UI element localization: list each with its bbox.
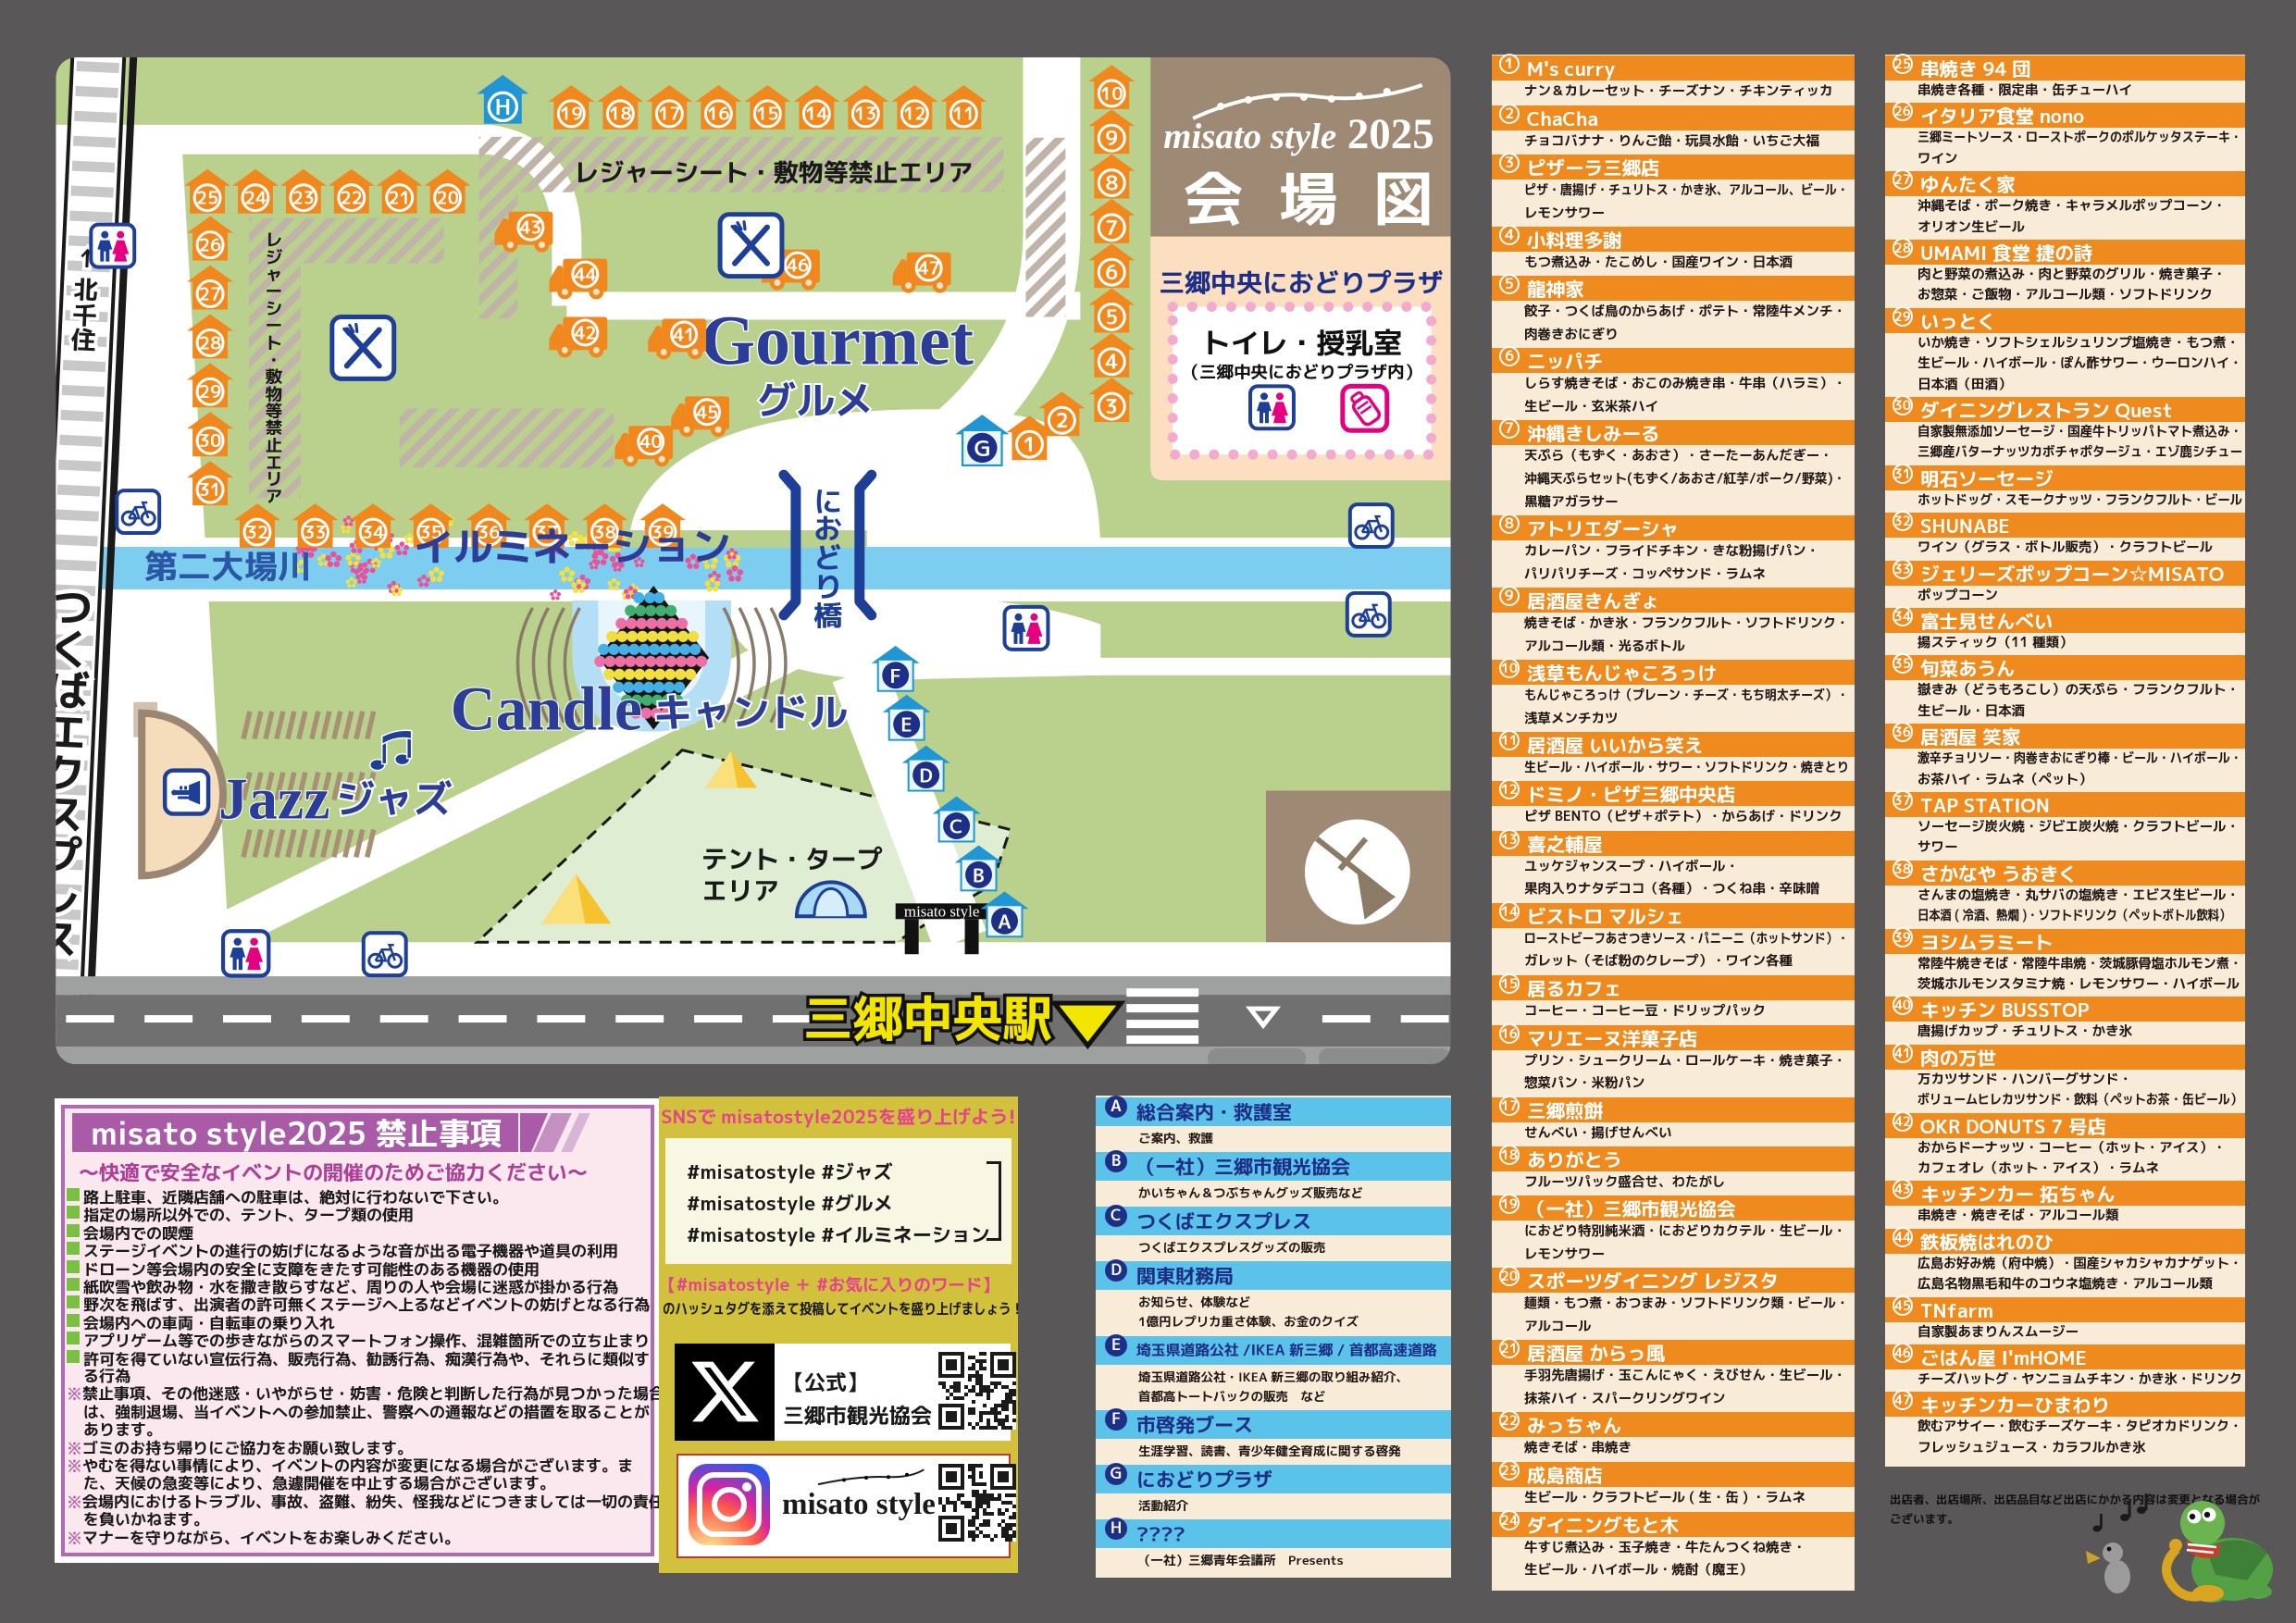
svg-text:におどり橋: におどり橋 xyxy=(808,486,848,629)
svg-text:33: 33 xyxy=(304,521,326,545)
svg-text:5: 5 xyxy=(1105,303,1118,331)
svg-text:40: 40 xyxy=(639,430,662,454)
svg-text:30: 30 xyxy=(199,429,221,453)
svg-text:イルミネーション: イルミネーション xyxy=(414,518,731,574)
svg-text:13: 13 xyxy=(854,103,876,127)
svg-text:25: 25 xyxy=(196,187,218,211)
svg-text:26: 26 xyxy=(199,233,221,257)
svg-text:H: H xyxy=(495,92,511,122)
svg-text:17: 17 xyxy=(658,103,680,127)
svg-text:第二大場川: 第二大場川 xyxy=(144,543,311,589)
svg-text:Jazz: Jazz xyxy=(218,765,330,831)
svg-text:12: 12 xyxy=(903,103,925,127)
svg-text:41: 41 xyxy=(673,323,695,347)
svg-text:44: 44 xyxy=(574,264,596,288)
svg-text:43: 43 xyxy=(519,217,541,241)
svg-text:G: G xyxy=(974,433,990,464)
svg-text:ジャズ: ジャズ xyxy=(336,773,453,826)
svg-text:（三郷中央におどりプラザ内）: （三郷中央におどりプラザ内） xyxy=(1183,359,1421,383)
svg-text:45: 45 xyxy=(696,401,718,425)
svg-text:21: 21 xyxy=(389,187,411,211)
svg-text:11: 11 xyxy=(952,103,974,127)
svg-text:2: 2 xyxy=(1055,406,1068,435)
svg-text:8: 8 xyxy=(1105,168,1118,197)
svg-text:北千住: 北千住 xyxy=(66,276,105,352)
svg-text:キャンドル: キャンドル xyxy=(653,686,848,739)
svg-text:23: 23 xyxy=(292,187,315,211)
svg-text:Candle: Candle xyxy=(451,675,642,744)
svg-text:29: 29 xyxy=(199,380,221,404)
svg-text:misato style 2025: misato style 2025 xyxy=(1163,110,1434,158)
svg-text:6: 6 xyxy=(1105,258,1118,287)
svg-text:18: 18 xyxy=(609,103,631,127)
svg-text:4: 4 xyxy=(1105,348,1118,377)
svg-text:A: A xyxy=(998,907,1011,935)
svg-text:会場図: 会場図 xyxy=(1184,157,1452,240)
svg-text:42: 42 xyxy=(574,321,596,345)
svg-text:14: 14 xyxy=(805,103,827,127)
svg-text:グルメ: グルメ xyxy=(757,373,874,427)
svg-text:F: F xyxy=(890,662,901,689)
svg-text:27: 27 xyxy=(199,282,221,306)
svg-text:Gourmet: Gourmet xyxy=(701,302,974,379)
svg-text:D: D xyxy=(919,762,933,789)
svg-text:B: B xyxy=(973,861,985,888)
svg-text:24: 24 xyxy=(244,187,267,211)
svg-text:10: 10 xyxy=(1100,82,1123,106)
svg-text:16: 16 xyxy=(707,103,729,127)
svg-text:47: 47 xyxy=(918,257,940,281)
svg-text:3: 3 xyxy=(1105,392,1118,421)
svg-text:22: 22 xyxy=(341,187,363,211)
svg-text:C: C xyxy=(949,811,963,839)
svg-text:misato style: misato style xyxy=(904,902,979,920)
svg-text:レジャーシート・敷物等禁止エリア: レジャーシート・敷物等禁止エリア xyxy=(262,231,286,504)
svg-text:46: 46 xyxy=(787,254,809,279)
svg-text:15: 15 xyxy=(756,103,778,127)
svg-text:20: 20 xyxy=(436,187,458,211)
svg-text:19: 19 xyxy=(560,103,582,127)
svg-text:エリア: エリア xyxy=(701,872,779,908)
svg-text:34: 34 xyxy=(362,521,384,545)
svg-text:三郷中央駅: 三郷中央駅 xyxy=(803,984,1052,1053)
svg-text:9: 9 xyxy=(1105,124,1118,153)
svg-text:E: E xyxy=(900,711,912,738)
svg-text:28: 28 xyxy=(199,331,221,355)
svg-text:レジャーシート・敷物等禁止エリア: レジャーシート・敷物等禁止エリア xyxy=(574,155,973,190)
svg-text:三郷中央におどりプラザ: 三郷中央におどりプラザ xyxy=(1159,265,1443,301)
svg-text:トイレ・授乳室: トイレ・授乳室 xyxy=(1202,322,1403,362)
svg-text:1: 1 xyxy=(1023,430,1036,459)
svg-text:31: 31 xyxy=(199,478,221,502)
svg-text:7: 7 xyxy=(1105,214,1118,242)
svg-text:32: 32 xyxy=(246,521,268,545)
